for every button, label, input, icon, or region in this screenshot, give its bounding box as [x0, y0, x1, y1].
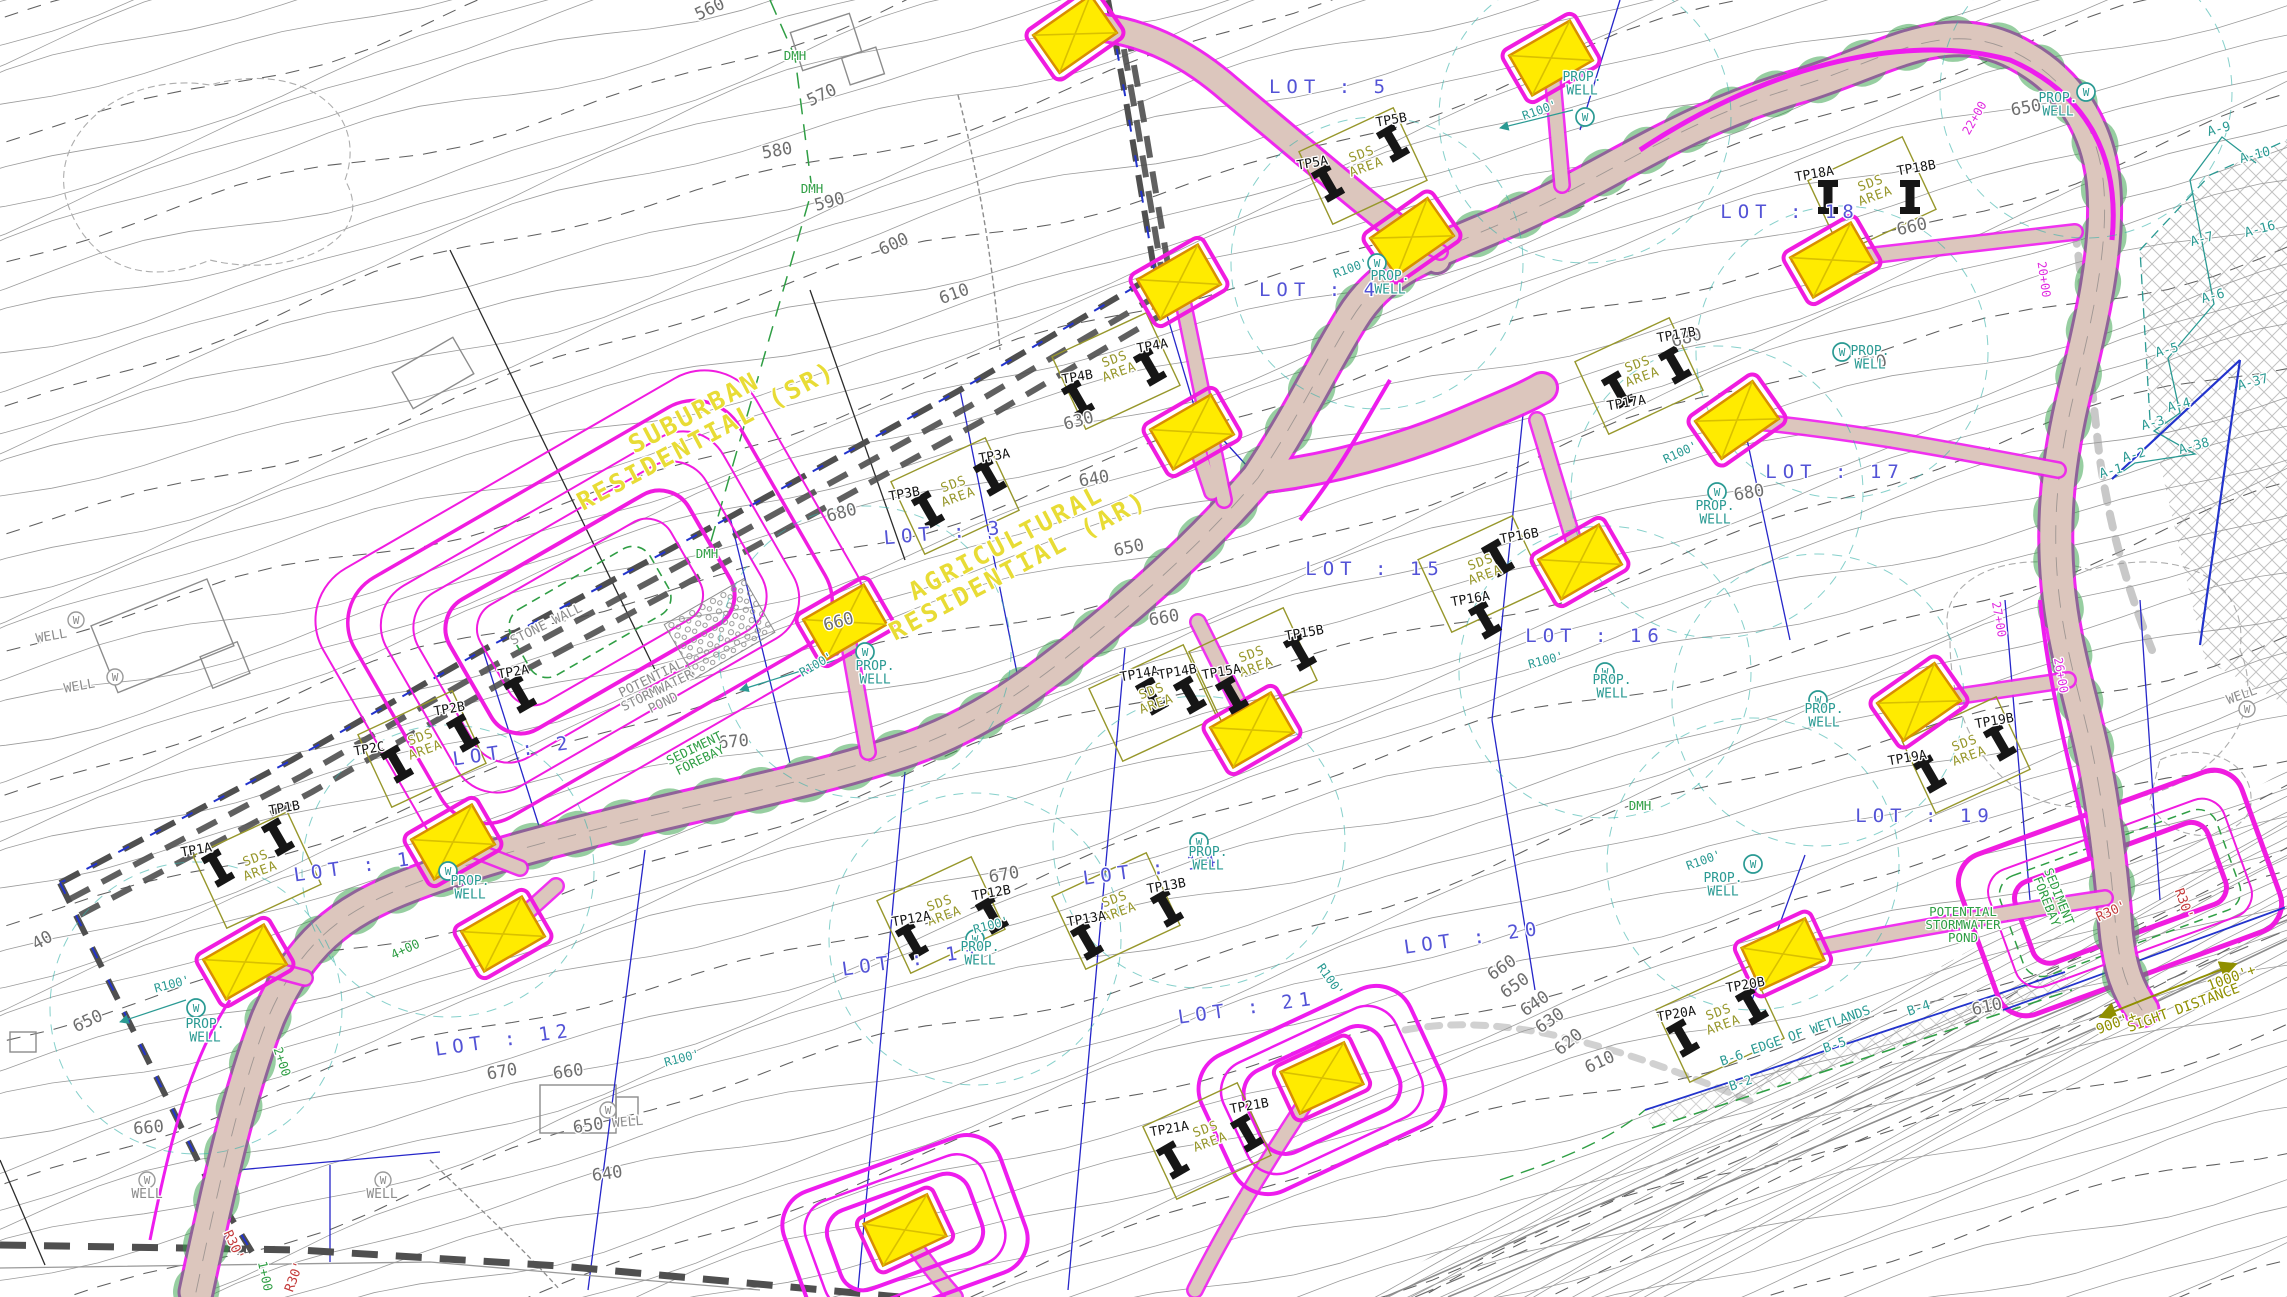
contour-line — [0, 628, 2287, 1297]
existing-well-icon — [107, 669, 123, 685]
test-pit-symbol — [1666, 1018, 1700, 1057]
well-radius-label: R100' — [1661, 438, 1700, 466]
sds-area-label: SDSAREA — [1619, 352, 1662, 391]
contour-elevation-label: 580 — [760, 139, 794, 164]
contour-line — [0, 924, 2287, 1297]
lot-number-label: LOT : 5 — [1269, 76, 1391, 98]
proposed-house — [1867, 653, 1970, 750]
proposed-well-label: PROP.WELL — [1188, 845, 1227, 874]
contour-line — [0, 0, 2287, 12]
existing-well-label: WELL — [611, 1114, 644, 1132]
contour-elevation-label: 670 — [485, 1060, 519, 1085]
test-pit-label: TP18B — [1896, 158, 1937, 180]
contour-line — [0, 0, 2287, 471]
wetland-flag-label: A-9 — [2206, 119, 2233, 140]
contour-elevation-label: 650 — [572, 1114, 605, 1138]
sds-area-label: SDSAREA — [935, 472, 978, 511]
contour-line — [0, 120, 2287, 832]
proposed-well-label: PROP.WELL — [1592, 673, 1631, 702]
proposed-well-label: PROP.WELL — [960, 940, 999, 969]
site-plan-canvas[interactable]: W W — [0, 0, 2287, 1297]
proposed-well-icon — [1744, 855, 1762, 873]
contour-line — [0, 929, 2287, 1297]
existing-well-label: WELL — [131, 1187, 162, 1202]
contour-line — [0, 405, 2287, 1297]
contour-line — [0, 1150, 2287, 1297]
contour-elevation-label: 680 — [824, 500, 859, 527]
zoning-district-label: SUBURBANRESIDENTIAL (SR) — [560, 332, 841, 516]
contour-line — [0, 422, 2287, 1105]
test-pit-label: TP19B — [1974, 711, 2015, 733]
contour-elevation-label: 660 — [1147, 606, 1181, 631]
lot-number-label: LOT : 17 — [1765, 461, 1905, 483]
contour-line — [0, 454, 2287, 1143]
well-radius-label: R100' — [663, 1047, 702, 1070]
contour-elevation-label: 610 — [936, 280, 972, 309]
proposed-well-label: PROP.WELL — [450, 874, 489, 903]
contour-line — [0, 702, 2287, 1297]
utility-annotation: POTENTIALSTORMWATERPOND — [1925, 904, 2001, 945]
contour-line — [0, 901, 2287, 1297]
well-radius-label: R100' — [1684, 847, 1723, 873]
proposed-well-icon — [2077, 83, 2095, 101]
test-pit-label: TP12A — [891, 909, 932, 931]
contour-line — [0, 0, 2287, 662]
well-radius-label: R100' — [1314, 961, 1346, 999]
well-radius-label: R100' — [153, 973, 192, 996]
contour-line — [0, 284, 2287, 996]
well-radius-label: R100' — [1527, 649, 1566, 672]
lot-number-label: LOT : 21 — [1177, 987, 1318, 1028]
contour-line — [0, 672, 2287, 1297]
existing-well-label: WELL — [366, 1187, 397, 1202]
utility-annotation: 4+00 — [388, 936, 422, 962]
test-pit-label: TP1B — [268, 798, 302, 818]
contour-line — [0, 813, 2287, 1297]
lot-number-label: LOT : 12 — [434, 1019, 575, 1060]
sds-area-label: SDSAREA — [402, 725, 445, 764]
test-pit-label: TP20B — [1725, 975, 1766, 997]
proposed-well-label: PROP.WELL — [1804, 702, 1843, 731]
utility-annotation: DMH — [801, 181, 824, 196]
existing-well-icon — [139, 1172, 155, 1188]
utility-annotation: DMH — [1629, 798, 1652, 813]
contour-elevation-label: 650 — [1112, 535, 1146, 561]
sds-area-label: SDSAREA — [1700, 1000, 1743, 1039]
existing-well-icon — [375, 1172, 391, 1188]
contour-line — [0, 1233, 2287, 1297]
test-pit-label: TP21A — [1149, 1119, 1190, 1141]
test-pit-label: TP15B — [1284, 623, 1325, 645]
contour-line — [0, 222, 2287, 893]
existing-road-south — [0, 1245, 900, 1297]
proposed-well-label: PROP.WELL — [1703, 871, 1742, 900]
site-plan-viewport: W W — [0, 0, 2287, 1297]
test-pit-label: TP4A — [1136, 336, 1170, 356]
contour-elevation-label: 660 — [552, 1060, 585, 1084]
proposed-well-label: PROP.WELL — [1370, 269, 1409, 298]
existing-well-icon — [68, 612, 84, 628]
contour-elevation-label: 630 — [1061, 408, 1096, 435]
proposed-well-label: PROP.WELL — [2038, 91, 2077, 120]
contour-line — [0, 651, 2287, 1297]
existing-well-label: WELL — [35, 626, 69, 646]
test-pit-label: TP17A — [1606, 393, 1647, 415]
lot-number-label: LOT : 20 — [1403, 917, 1544, 958]
wetland-flag-label: A-2 — [2121, 445, 2148, 466]
proposed-well-icon — [1833, 343, 1851, 361]
sds-area-label: SDSAREA — [237, 846, 280, 885]
test-pit-label: TP2A — [497, 662, 531, 682]
proposed-well-label: PROP.WELL — [1850, 344, 1889, 373]
proposed-well-label: PROP.WELL — [185, 1017, 224, 1046]
existing-well-label: WELL — [63, 676, 97, 696]
contour-elevation-label: 610 — [1970, 994, 2004, 1020]
proposed-well-label: PROP.WELL — [1562, 70, 1601, 99]
contour-line — [0, 712, 2287, 1297]
lot-number-label: LOT : 15 — [1305, 558, 1445, 580]
proposed-well-label: PROP.WELL — [1695, 499, 1734, 528]
contour-elevation-label: 660 — [132, 1117, 164, 1140]
contour-elevation-label: 650 — [70, 1006, 106, 1037]
contour-elevation-label: 640 — [591, 1162, 624, 1186]
test-pit-label: TP3A — [978, 446, 1012, 466]
proposed-well-icon — [187, 999, 205, 1017]
contour-line — [0, 1292, 2287, 1297]
contour-line — [0, 1060, 2287, 1297]
utility-annotation: DMH — [696, 546, 719, 561]
test-pit-label: TP21B — [1229, 1096, 1270, 1118]
proposed-house — [1141, 385, 1244, 479]
utility-annotation: DMH — [784, 48, 807, 63]
contour-line — [0, 898, 2287, 1297]
lot-number-label: LOT : 18 — [1720, 201, 1860, 223]
test-pit-label: TP13A — [1066, 909, 1107, 931]
contour-line — [0, 672, 2287, 1297]
existing-features-layer — [10, 13, 2251, 1290]
lot-number-label: LOT : 4 — [1259, 279, 1381, 301]
contour-line — [0, 810, 2287, 1297]
proposed-well-icon — [1576, 108, 1594, 126]
proposed-house — [1781, 213, 1884, 307]
contour-line — [0, 532, 2287, 1246]
contour-line — [0, 904, 2287, 1297]
contour-elevation-label: 570 — [804, 80, 840, 111]
curb-radius-label: R30' — [2171, 887, 2196, 922]
proposed-house — [1529, 515, 1632, 609]
contour-line — [0, 638, 2287, 1297]
test-pit-label: TP12B — [971, 883, 1012, 905]
wetland-flag-label: B-6 — [1718, 1048, 1745, 1070]
proposed-well-label: PROP.WELL — [855, 659, 894, 688]
sds-area-label: SDSAREA — [1946, 731, 1989, 770]
contour-line — [0, 1173, 2287, 1297]
lot-number-label: LOT : 19 — [1855, 805, 1995, 827]
lot-number-label: LOT : 16 — [1525, 625, 1665, 647]
contour-elevation-label: 40 — [29, 927, 57, 955]
road-station-label: 20+00 — [2035, 261, 2054, 299]
contour-line — [0, 1256, 2287, 1297]
contour-labels-layer: 5605705805906006106306406506606806606706… — [29, 0, 2043, 1186]
proposed-house — [1271, 1033, 1372, 1123]
road-station-label: 22+00 — [1959, 99, 1989, 137]
